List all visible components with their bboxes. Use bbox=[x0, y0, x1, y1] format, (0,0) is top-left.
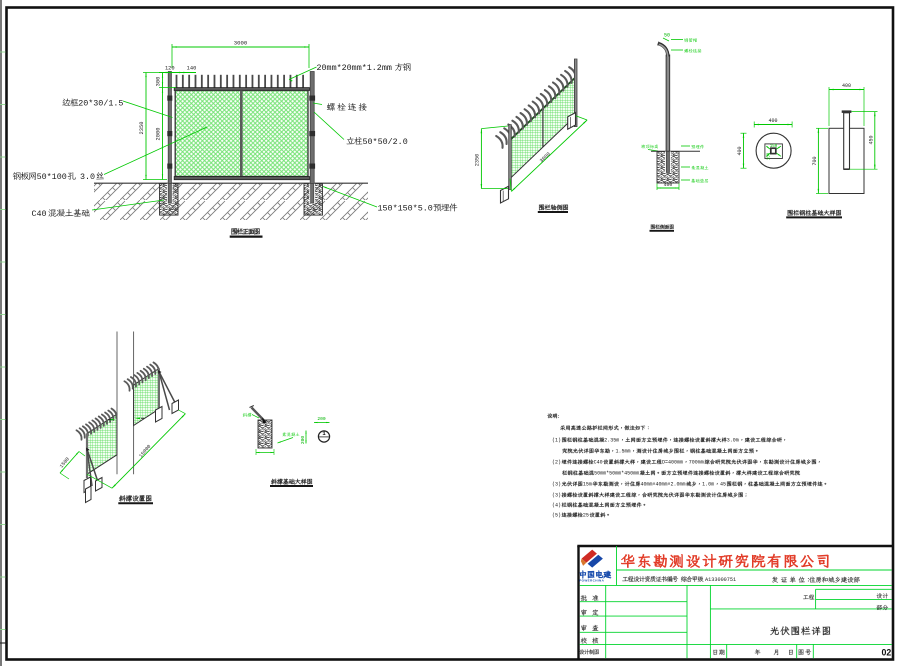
svg-text:(3): (3) bbox=[552, 493, 561, 499]
svg-text:200: 200 bbox=[317, 416, 326, 422]
svg-text:150: 150 bbox=[770, 145, 778, 149]
svg-text:1.5mm: 1.5mm bbox=[616, 449, 631, 455]
svg-text:400: 400 bbox=[768, 118, 777, 124]
svg-text:120: 120 bbox=[165, 65, 175, 71]
svg-text:(1): (1) bbox=[552, 438, 561, 444]
svg-text:400: 400 bbox=[737, 146, 743, 155]
svg-text:50*100: 50*100 bbox=[37, 172, 67, 182]
svg-text:20mm*20mm*1.2mm: 20mm*20mm*1.2mm bbox=[317, 63, 392, 73]
svg-text:C40: C40 bbox=[594, 460, 603, 466]
svg-text:50*50/2.0: 50*50/2.0 bbox=[363, 137, 408, 147]
svg-text:(5): (5) bbox=[552, 513, 561, 519]
svg-text:02: 02 bbox=[882, 648, 892, 658]
svg-text:300: 300 bbox=[156, 77, 162, 87]
svg-text:20*30/1.5: 20*30/1.5 bbox=[78, 99, 123, 109]
svg-text:400: 400 bbox=[842, 83, 851, 89]
svg-text:150: 150 bbox=[767, 152, 771, 160]
svg-text:3.0: 3.0 bbox=[80, 172, 95, 182]
svg-text:1.0m: 1.0m bbox=[702, 482, 714, 488]
svg-text:3.0m: 3.0m bbox=[727, 438, 739, 444]
svg-text:2000: 2000 bbox=[156, 128, 162, 141]
svg-text:400: 400 bbox=[664, 182, 673, 188]
svg-text:2350: 2350 bbox=[475, 154, 481, 166]
svg-text:700: 700 bbox=[812, 156, 818, 165]
svg-text:25: 25 bbox=[583, 513, 589, 519]
svg-text:(4): (4) bbox=[552, 503, 561, 509]
svg-text:700mm: 700mm bbox=[689, 460, 704, 466]
svg-text:140: 140 bbox=[187, 65, 197, 71]
svg-text:200: 200 bbox=[300, 436, 306, 445]
svg-text:C40: C40 bbox=[32, 209, 47, 219]
svg-text:15m: 15m bbox=[583, 482, 592, 488]
svg-text:(2): (2) bbox=[552, 460, 561, 466]
svg-text:450: 450 bbox=[868, 135, 874, 144]
svg-text:POWERCHINA: POWERCHINA bbox=[579, 579, 604, 583]
svg-text:2350: 2350 bbox=[139, 122, 145, 135]
svg-text:50: 50 bbox=[664, 33, 670, 39]
svg-text:50mm*50mm*450mm: 50mm*50mm*450mm bbox=[594, 471, 639, 477]
svg-text:D=400mm: D=400mm bbox=[662, 460, 683, 466]
svg-text:A133000751: A133000751 bbox=[705, 577, 736, 583]
svg-text:40mm×40mm×2.0mm: 40mm×40mm×2.0mm bbox=[641, 482, 686, 488]
svg-text:3000: 3000 bbox=[234, 40, 248, 47]
svg-text:(3): (3) bbox=[552, 482, 561, 488]
svg-text:2.35m: 2.35m bbox=[604, 438, 619, 444]
svg-text:45: 45 bbox=[720, 482, 726, 488]
svg-text:150*150*5.0: 150*150*5.0 bbox=[378, 204, 433, 214]
